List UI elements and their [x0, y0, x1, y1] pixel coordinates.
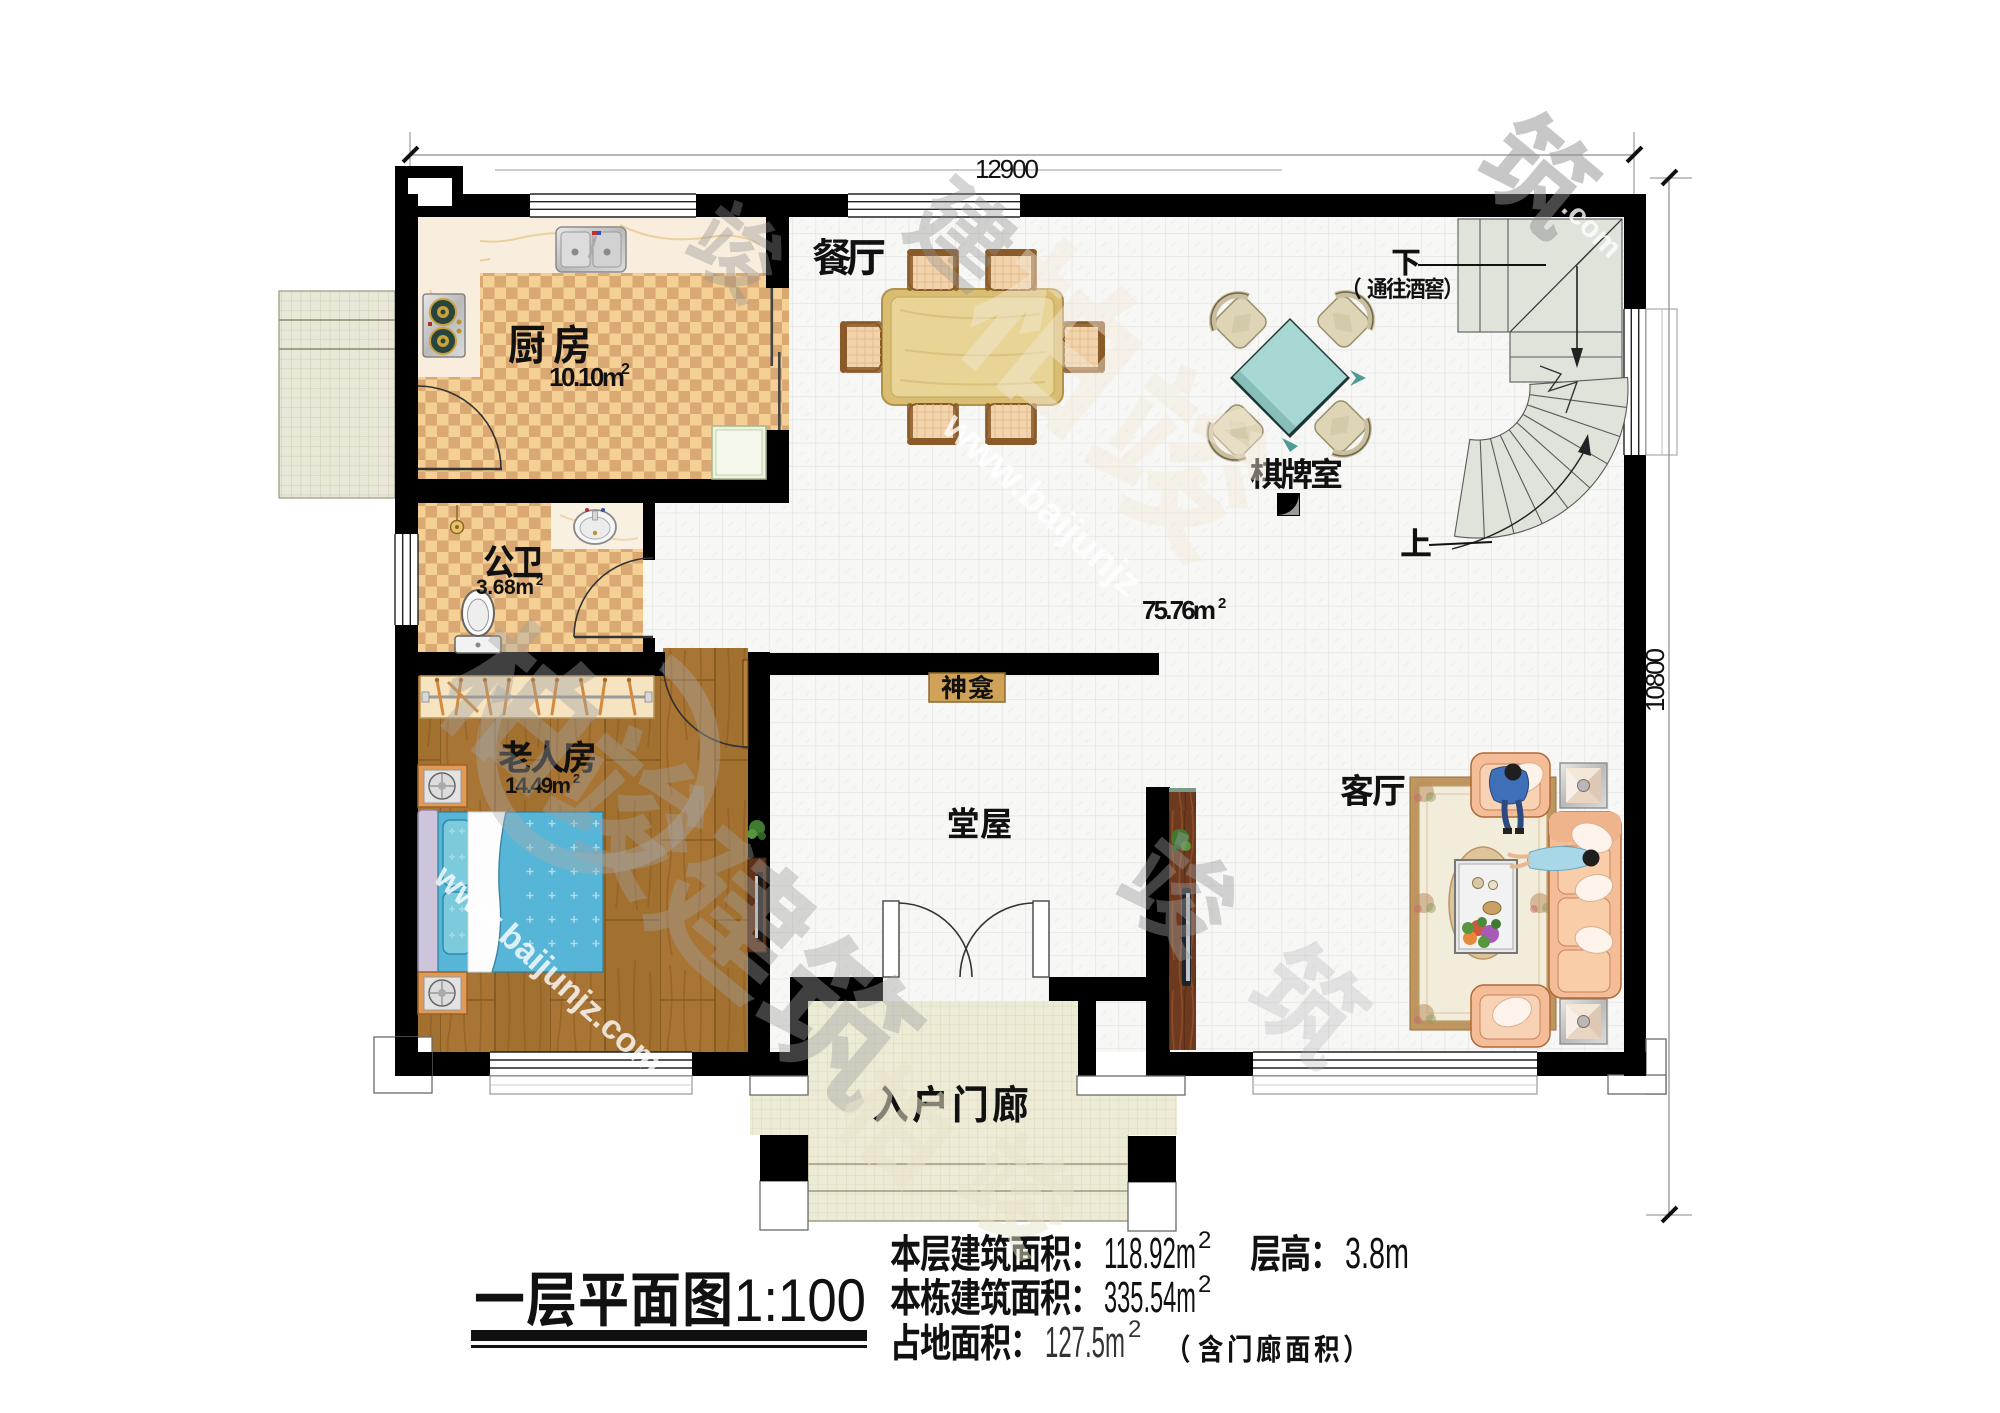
svg-text:3.68m: 3.68m — [476, 576, 534, 599]
svg-text:118.92m: 118.92m — [1104, 1229, 1196, 1278]
svg-text:2: 2 — [1198, 1227, 1211, 1254]
svg-text:10.10m: 10.10m — [549, 362, 625, 392]
svg-text:127.5m: 127.5m — [1045, 1318, 1125, 1367]
svg-text:12900: 12900 — [975, 154, 1039, 184]
svg-text:335.54m: 335.54m — [1104, 1273, 1196, 1322]
svg-text:2: 2 — [1128, 1316, 1141, 1343]
svg-text:2: 2 — [1218, 595, 1226, 612]
svg-text:2: 2 — [1198, 1271, 1211, 1298]
svg-text:1:100: 1:100 — [734, 1267, 866, 1334]
svg-text:2: 2 — [536, 573, 543, 588]
svg-text:75.76m: 75.76m — [1142, 595, 1216, 625]
svg-text:2: 2 — [621, 361, 630, 378]
svg-text:10800: 10800 — [1640, 648, 1670, 712]
svg-text:3.8m: 3.8m — [1345, 1229, 1409, 1278]
